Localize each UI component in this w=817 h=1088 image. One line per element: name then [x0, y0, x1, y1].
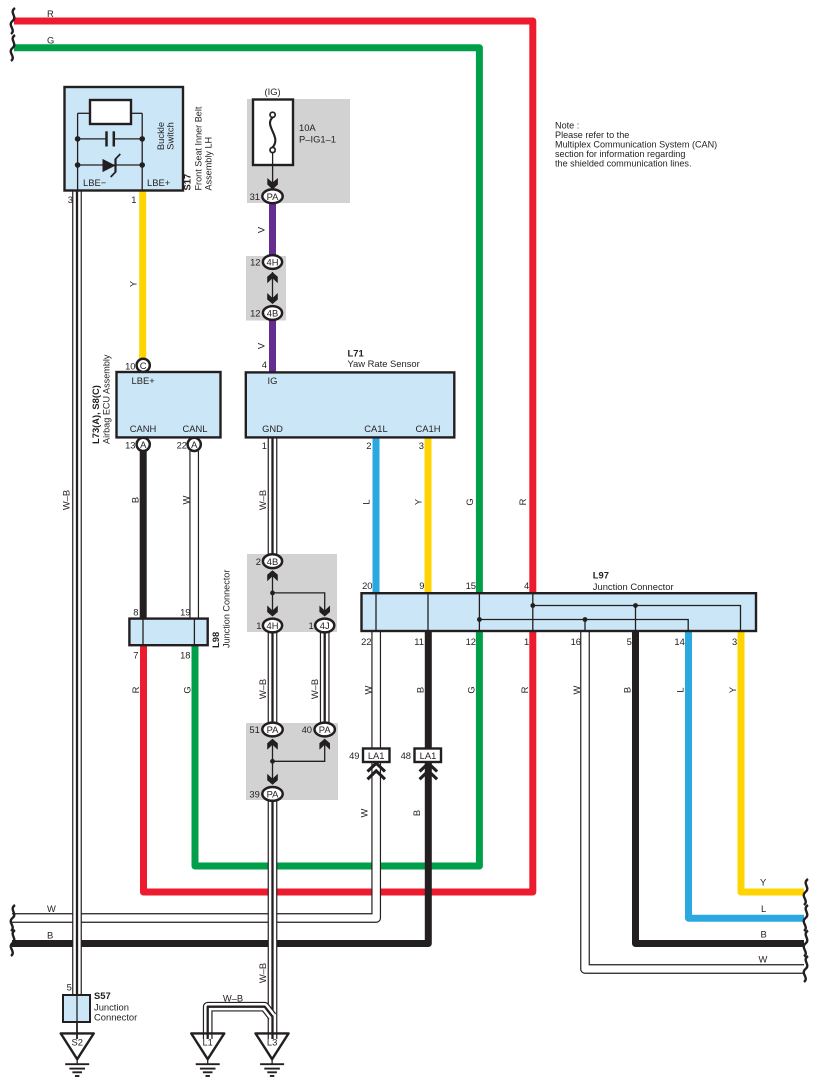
svg-text:Y: Y	[760, 877, 767, 888]
svg-text:R: R	[517, 498, 528, 505]
svg-text:22: 22	[361, 636, 371, 647]
svg-text:Junction Connector: Junction Connector	[222, 570, 232, 648]
svg-text:G: G	[466, 686, 477, 693]
svg-text:G: G	[47, 35, 54, 46]
svg-text:CA1L: CA1L	[364, 423, 387, 434]
svg-text:GND: GND	[262, 423, 283, 434]
svg-text:10A: 10A	[299, 122, 316, 133]
svg-text:1: 1	[524, 636, 529, 647]
svg-text:5: 5	[67, 982, 72, 993]
svg-text:W: W	[359, 808, 370, 817]
svg-text:W: W	[47, 903, 56, 914]
svg-text:5: 5	[627, 636, 632, 647]
svg-text:Junction Connector: Junction Connector	[593, 581, 674, 592]
svg-text:W–B: W–B	[257, 490, 268, 510]
svg-text:R: R	[130, 686, 141, 693]
svg-text:the shielded communication lin: the shielded communication lines.	[555, 159, 691, 169]
svg-text:L: L	[361, 499, 372, 504]
svg-text:31: 31	[250, 191, 260, 202]
svg-text:LA1: LA1	[368, 750, 385, 761]
svg-text:Please refer to the: Please refer to the	[555, 130, 629, 140]
svg-text:4: 4	[524, 580, 529, 591]
svg-text:LA1: LA1	[420, 750, 437, 761]
svg-text:1: 1	[256, 620, 261, 631]
svg-text:1: 1	[131, 194, 136, 205]
svg-text:W: W	[571, 685, 582, 694]
svg-text:2: 2	[366, 440, 371, 451]
svg-text:49: 49	[349, 750, 359, 761]
svg-text:S17: S17	[182, 174, 193, 191]
svg-text:PA: PA	[319, 724, 332, 735]
svg-text:51: 51	[249, 724, 259, 735]
svg-text:B: B	[415, 687, 426, 693]
svg-text:W–B: W–B	[309, 679, 320, 699]
svg-text:Y: Y	[128, 280, 139, 287]
svg-text:S57: S57	[94, 990, 111, 1001]
svg-text:W–B: W–B	[257, 963, 268, 983]
svg-text:Y: Y	[413, 498, 424, 505]
svg-text:9: 9	[419, 580, 424, 591]
svg-text:2: 2	[256, 556, 261, 567]
svg-text:PA: PA	[267, 191, 280, 202]
svg-text:39: 39	[249, 789, 259, 800]
svg-text:A: A	[191, 439, 198, 450]
svg-text:CA1H: CA1H	[415, 423, 440, 434]
svg-text:W–B: W–B	[61, 490, 72, 510]
svg-text:Yaw Rate Sensor: Yaw Rate Sensor	[348, 358, 420, 369]
svg-text:L98: L98	[210, 632, 221, 648]
svg-text:Front Seat Inner Belt: Front Seat Inner Belt	[194, 106, 204, 190]
svg-text:Y: Y	[727, 686, 738, 693]
svg-text:B: B	[622, 687, 633, 693]
svg-text:3: 3	[732, 636, 737, 647]
svg-text:CANH: CANH	[130, 423, 157, 434]
svg-text:Note :: Note :	[555, 121, 579, 131]
svg-text:12: 12	[250, 308, 260, 319]
svg-text:7: 7	[133, 650, 138, 661]
svg-text:W: W	[181, 495, 192, 504]
svg-text:4H: 4H	[267, 620, 279, 631]
svg-text:S2: S2	[71, 1037, 82, 1048]
svg-text:4H: 4H	[267, 257, 279, 268]
svg-text:13: 13	[125, 440, 135, 451]
svg-text:Connector: Connector	[94, 1012, 137, 1023]
svg-text:22: 22	[177, 440, 187, 451]
svg-text:C: C	[140, 360, 147, 371]
svg-text:G: G	[182, 686, 193, 693]
svg-text:Switch: Switch	[165, 122, 176, 150]
svg-text:B: B	[130, 497, 141, 503]
svg-text:LBE+: LBE+	[132, 375, 156, 386]
svg-text:3: 3	[419, 440, 424, 451]
svg-text:4B: 4B	[267, 556, 278, 567]
svg-text:W–B: W–B	[257, 679, 268, 699]
svg-text:40: 40	[302, 724, 312, 735]
svg-text:1: 1	[308, 620, 313, 631]
svg-text:14: 14	[674, 636, 684, 647]
svg-text:CANL: CANL	[182, 423, 207, 434]
svg-text:11: 11	[414, 636, 424, 647]
svg-text:R: R	[47, 8, 54, 19]
svg-text:12: 12	[466, 636, 476, 647]
svg-text:B: B	[761, 929, 767, 940]
svg-text:LBE−: LBE−	[83, 177, 107, 188]
svg-text:W–B: W–B	[223, 993, 243, 1004]
svg-text:V: V	[256, 342, 267, 349]
svg-text:L97: L97	[593, 570, 609, 581]
svg-text:PA: PA	[267, 789, 280, 800]
svg-text:18: 18	[180, 650, 190, 661]
svg-text:B: B	[47, 930, 53, 941]
svg-text:W: W	[363, 685, 374, 694]
svg-text:Airbag ECU Assembly: Airbag ECU Assembly	[102, 354, 112, 444]
svg-text:LBE+: LBE+	[147, 177, 171, 188]
svg-text:Assembly LH: Assembly LH	[204, 137, 214, 191]
svg-text:4J: 4J	[320, 620, 330, 631]
svg-text:8: 8	[133, 607, 138, 618]
svg-text:PA: PA	[267, 724, 280, 735]
svg-text:W: W	[759, 954, 768, 965]
svg-text:L73(A), S8(C): L73(A), S8(C)	[90, 385, 101, 444]
svg-text:Multiplex Communication System: Multiplex Communication System (CAN)	[555, 140, 717, 150]
svg-text:3: 3	[68, 194, 73, 205]
svg-text:IG: IG	[268, 375, 278, 386]
svg-text:(IG): (IG)	[265, 86, 281, 97]
svg-text:15: 15	[466, 580, 476, 591]
svg-text:1: 1	[262, 440, 267, 451]
svg-text:4B: 4B	[267, 308, 278, 319]
svg-text:R: R	[519, 686, 530, 693]
svg-text:48: 48	[401, 750, 411, 761]
svg-text:L: L	[761, 903, 766, 914]
svg-text:L3: L3	[267, 1037, 277, 1048]
svg-text:16: 16	[571, 636, 581, 647]
svg-text:B: B	[411, 810, 422, 816]
svg-text:L1: L1	[202, 1037, 212, 1048]
svg-text:20: 20	[362, 580, 372, 591]
svg-text:4: 4	[262, 359, 267, 370]
svg-text:section for information regard: section for information regarding	[555, 149, 685, 159]
svg-text:P–IG1–1: P–IG1–1	[299, 134, 336, 145]
svg-text:G: G	[464, 498, 475, 505]
svg-text:L: L	[675, 687, 686, 692]
svg-text:19: 19	[180, 607, 190, 618]
svg-text:V: V	[256, 226, 267, 233]
svg-text:A: A	[140, 439, 147, 450]
svg-text:12: 12	[250, 257, 260, 268]
svg-text:10: 10	[125, 361, 135, 372]
